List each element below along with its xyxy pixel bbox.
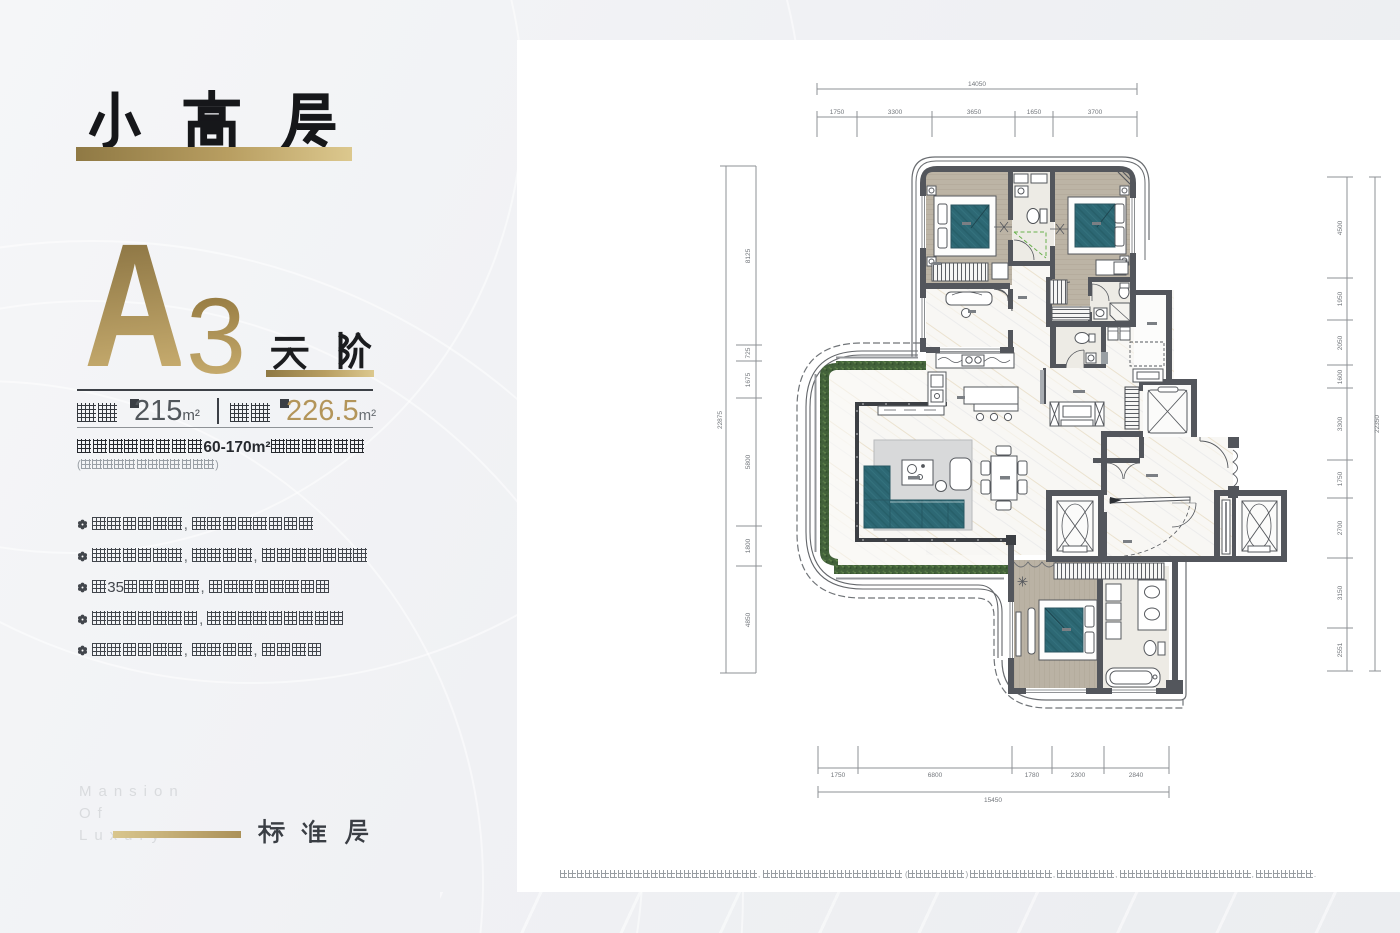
svg-text:1750: 1750 (1337, 471, 1344, 486)
svg-text:14050: 14050 (968, 81, 986, 88)
svg-text:22875: 22875 (717, 411, 724, 429)
svg-text:1750: 1750 (831, 772, 846, 779)
svg-text:2300: 2300 (1071, 772, 1086, 779)
svg-text:725: 725 (745, 347, 752, 358)
svg-text:1750: 1750 (830, 109, 845, 116)
svg-text:4500: 4500 (1337, 220, 1344, 235)
svg-text:6800: 6800 (928, 772, 943, 779)
svg-text:1950: 1950 (1337, 291, 1344, 306)
svg-text:2050: 2050 (1337, 335, 1344, 350)
svg-text:1800: 1800 (745, 538, 752, 553)
svg-text:5800: 5800 (745, 454, 752, 469)
svg-text:3300: 3300 (888, 109, 903, 116)
svg-text:2840: 2840 (1129, 772, 1144, 779)
svg-text:2700: 2700 (1337, 520, 1344, 535)
svg-text:1780: 1780 (1025, 772, 1040, 779)
svg-text:22350: 22350 (1374, 415, 1381, 433)
svg-text:3650: 3650 (967, 109, 982, 116)
svg-text:15450: 15450 (984, 797, 1002, 804)
svg-text:3300: 3300 (1337, 416, 1344, 431)
svg-text:1650: 1650 (1027, 109, 1042, 116)
svg-text:3700: 3700 (1088, 109, 1103, 116)
svg-text:2551: 2551 (1337, 642, 1344, 657)
svg-text:1600: 1600 (1337, 369, 1344, 384)
svg-text:8125: 8125 (745, 248, 752, 263)
svg-text:1675: 1675 (745, 372, 752, 387)
svg-text:4850: 4850 (745, 612, 752, 627)
svg-text:3150: 3150 (1337, 585, 1344, 600)
